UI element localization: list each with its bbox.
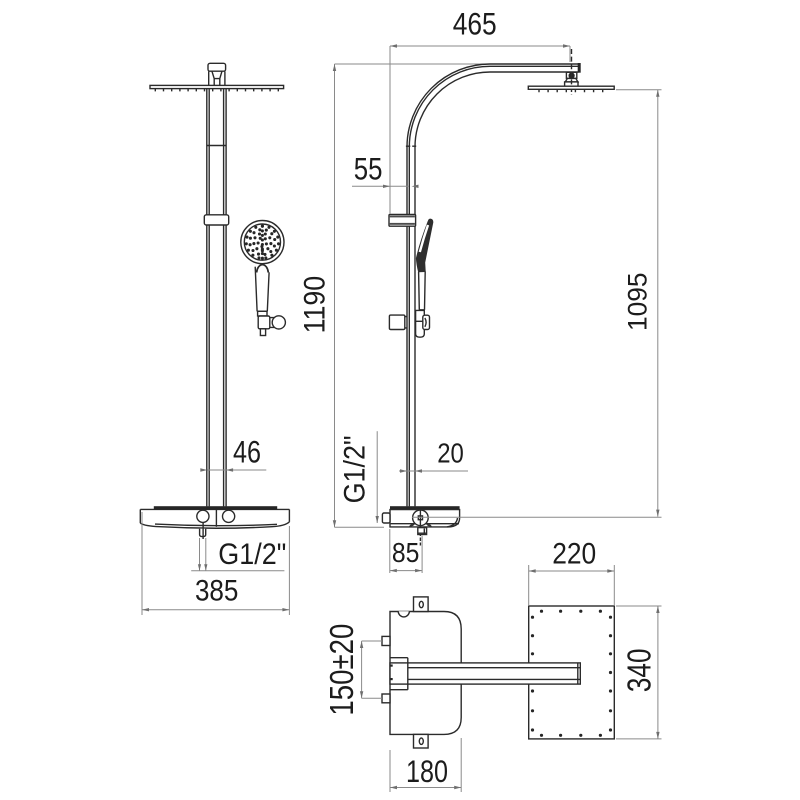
svg-text:1190: 1190 [298,276,331,334]
svg-text:85: 85 [392,537,420,568]
svg-text:340: 340 [620,649,657,693]
svg-text:1095: 1095 [623,273,653,332]
svg-text:150±20: 150±20 [323,624,360,716]
svg-text:46: 46 [233,434,261,470]
svg-text:55: 55 [354,150,383,186]
svg-text:180: 180 [406,753,448,789]
svg-text:385: 385 [195,575,239,608]
svg-text:220: 220 [552,537,596,570]
svg-text:G1/2": G1/2" [339,435,372,503]
svg-text:G1/2": G1/2" [218,538,286,571]
svg-text:465: 465 [453,6,497,42]
svg-text:20: 20 [437,438,464,469]
